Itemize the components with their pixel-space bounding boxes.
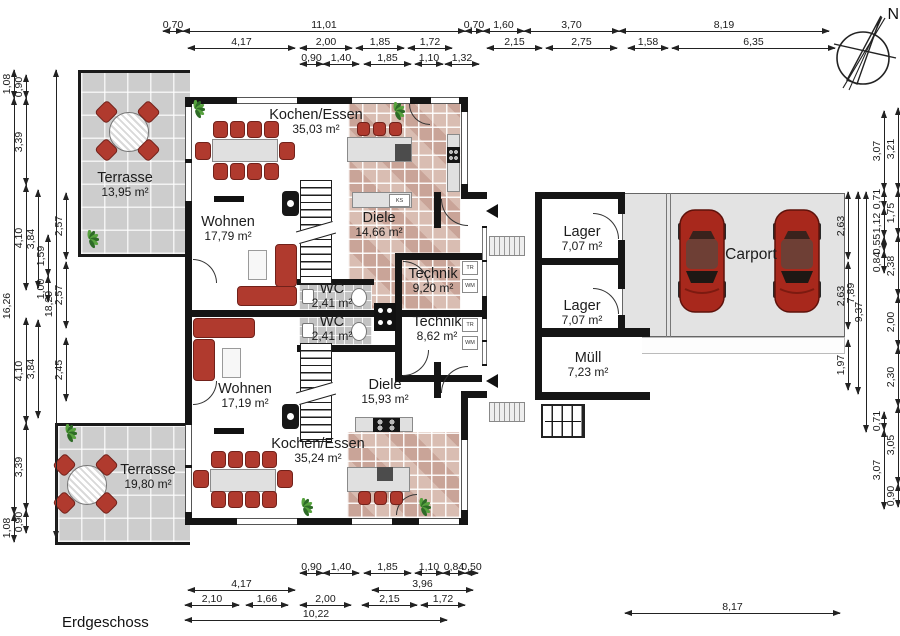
dimension-value: 7,89	[845, 283, 857, 303]
dining-chair	[195, 142, 211, 160]
door-arc	[193, 381, 217, 405]
dimension-value: 0,50	[461, 561, 481, 573]
dimension-value: 4,10	[13, 360, 25, 380]
dimension-line: 1,75	[898, 190, 899, 235]
dimension-value: 1,75	[885, 202, 897, 222]
dining-chair	[264, 163, 279, 180]
room-label-terrasse-top: Terrasse13,95 m²	[97, 170, 153, 200]
room-name: WC	[312, 314, 353, 330]
dimension-line: 1,40	[323, 64, 359, 65]
dimension-value: 2,57	[53, 216, 65, 236]
dimension-value: 3,07	[871, 140, 883, 160]
dimension-value: 4,17	[231, 578, 251, 590]
carport-divider	[670, 193, 671, 337]
plant-icon	[386, 102, 405, 121]
wall	[395, 253, 482, 260]
dimension-line: 0,90	[300, 64, 323, 65]
dimension-line: 0,90	[26, 75, 27, 98]
dimension-line: 1,60	[483, 31, 524, 32]
dimension-line: 1,97	[848, 340, 849, 390]
room-name: Wohnen	[218, 381, 272, 397]
terrace-top-floor	[78, 70, 190, 257]
room-area: 35,24 m²	[271, 452, 365, 465]
room-area: 17,79 m²	[201, 230, 255, 243]
sideboard	[214, 196, 244, 202]
dimension-value: 1,58	[638, 36, 658, 48]
wall	[395, 317, 402, 382]
dimension-value: 9,37	[853, 302, 865, 322]
floorplan-canvas: N Erdgeschoss Kochen/Essen35,03 m²Wohnen…	[0, 0, 900, 636]
dimension-value: 2,00	[315, 593, 335, 605]
dimension-value: 1,08	[1, 74, 13, 94]
dimension-value: 2,00	[885, 311, 897, 331]
dimension-value: 2,75	[571, 36, 591, 48]
room-area: 14,66 m²	[355, 226, 402, 239]
dimension-line: 8,19	[619, 31, 829, 32]
window	[482, 319, 487, 340]
room-label-lager-top: Lager7,07 m²	[562, 224, 603, 254]
dimension-value: 8,19	[714, 19, 734, 31]
dimension-value: 3,05	[885, 435, 897, 455]
window	[352, 518, 392, 525]
window	[419, 518, 459, 525]
staircase-top	[300, 180, 332, 285]
dimension-line: 2,00	[898, 296, 899, 347]
coffee-table-bottom	[222, 348, 241, 378]
wall	[535, 192, 542, 400]
dimension-value: 1,97	[835, 355, 847, 375]
door-arc	[403, 350, 429, 376]
dimension-value: 2,30	[885, 366, 897, 386]
fireplace-top	[282, 191, 299, 216]
room-label-diele-top: Diele14,66 m²	[355, 210, 402, 240]
dining-chair	[277, 470, 293, 488]
dining-chair	[211, 451, 226, 468]
dimension-line: 16,26	[14, 98, 15, 514]
entrance-arrow-icon	[486, 204, 498, 218]
dimension-value: 3,39	[13, 131, 25, 151]
dimension-line: 7,89	[858, 192, 859, 394]
dimension-line: 0,90	[26, 510, 27, 533]
sofa-bottom	[193, 318, 255, 338]
chimney-block	[374, 303, 396, 331]
bar-stool	[374, 491, 387, 505]
dimension-line: 8,17	[625, 613, 840, 614]
dimension-line: 2,57	[66, 193, 67, 259]
room-label-lager-bottom: Lager7,07 m²	[562, 298, 603, 328]
dimension-line: 2,57	[66, 262, 67, 328]
room-area: 7,23 m²	[568, 366, 609, 379]
room-area: 9,20 m²	[408, 282, 457, 295]
door-arc	[193, 259, 217, 283]
dimension-line: 6,35	[672, 48, 835, 49]
dimension-value: 1,40	[331, 561, 351, 573]
dining-chair	[228, 451, 243, 468]
dimension-value: 1,85	[377, 561, 397, 573]
dimension-value: 3,84	[25, 359, 37, 379]
dining-chair	[193, 470, 209, 488]
room-label-wc-bottom: WC2,41 m²	[312, 314, 353, 344]
cooktop-bottom	[373, 418, 400, 432]
bar-stool	[358, 491, 371, 505]
appliance-tag-wm: WM	[462, 279, 478, 293]
wall	[535, 392, 650, 400]
dimension-value: 3,21	[885, 139, 897, 159]
dimension-value: 1,72	[433, 593, 453, 605]
dimension-value: 4,17	[231, 36, 251, 48]
dimension-line: 0,50	[465, 573, 478, 574]
dimension-line: 3,21	[898, 108, 899, 190]
dimension-value: 4,10	[13, 227, 25, 247]
appliance-label: TR	[466, 265, 473, 271]
dining-chair	[262, 491, 277, 508]
cooktop-top	[447, 147, 460, 163]
dimension-line: 2,38	[898, 235, 899, 296]
dimension-line: 1,10	[415, 64, 443, 65]
room-area: 7,07 m²	[562, 314, 603, 327]
staircase-bottom	[300, 343, 332, 442]
room-name: Wohnen	[201, 214, 255, 230]
room-name: Diele	[355, 210, 402, 226]
floor-title: Erdgeschoss	[62, 614, 149, 631]
room-label-technik-bottom: Technik8,62 m²	[412, 314, 461, 344]
dimension-line: 1,59	[48, 235, 49, 276]
dining-table-bottom	[210, 469, 276, 492]
bar-stool	[389, 122, 402, 136]
dimension-value: 1,40	[331, 52, 351, 64]
dimension-line: 2,15	[362, 605, 417, 606]
sofa-bottom	[193, 339, 215, 381]
room-label-terrasse-bottom: Terrasse19,80 m²	[120, 462, 176, 492]
dimension-value: 10,22	[303, 608, 329, 620]
room-name: Lager	[562, 298, 603, 314]
window	[237, 518, 297, 525]
room-label-diele-bottom: Diele15,93 m²	[361, 377, 408, 407]
appliance-label: TR	[466, 322, 473, 328]
room-label-carport: Carport	[725, 246, 777, 263]
sideboard	[214, 428, 244, 434]
room-name: Lager	[562, 224, 603, 240]
wall	[535, 328, 650, 337]
room-area: 7,07 m²	[562, 240, 603, 253]
plant-icon	[58, 424, 77, 443]
room-label-wohnen-bottom: Wohnen17,19 m²	[218, 381, 272, 411]
dimension-line: 1,72	[408, 48, 452, 49]
dimension-value: 3,07	[871, 459, 883, 479]
carport-divider	[666, 193, 667, 337]
compass: N	[833, 6, 899, 94]
dimension-value: 2,63	[835, 215, 847, 235]
dimension-value: 11,01	[311, 19, 337, 31]
dimension-line: 1,40	[323, 573, 359, 574]
room-area: 17,19 m²	[218, 397, 272, 410]
toilet	[351, 288, 367, 307]
door-arc	[441, 366, 468, 393]
dimension-value: 0,84	[871, 252, 883, 272]
dimension-value: 2,38	[885, 255, 897, 275]
entrance-arrow-icon	[486, 374, 498, 388]
dimension-line: 1,72	[421, 605, 465, 606]
room-label-kochen-essen-top: Kochen/Essen35,03 m²	[269, 107, 363, 137]
dimension-line: 1,85	[364, 573, 411, 574]
room-area: 8,62 m²	[412, 330, 461, 343]
dimension-value: 0,90	[13, 76, 25, 96]
dimension-line: 3,84	[38, 190, 39, 288]
dimension-line: 3,39	[26, 98, 27, 185]
appliance-label: WM	[465, 283, 475, 289]
dimension-line: 0,55	[884, 237, 885, 251]
room-name: Carport	[725, 246, 777, 263]
appliance-label: KS	[396, 198, 403, 204]
room-label-wohnen-top: Wohnen17,79 m²	[201, 214, 255, 244]
dimension-line: 1,66	[246, 605, 288, 606]
dimension-value: 0,90	[13, 511, 25, 531]
dimension-value: 1,32	[452, 52, 472, 64]
plant-icon	[294, 498, 313, 517]
carport-car	[772, 209, 822, 313]
dimension-line: 3,84	[38, 320, 39, 418]
dimension-line: 1,10	[415, 573, 443, 574]
room-name: Technik	[412, 314, 461, 330]
wall	[535, 192, 625, 199]
dimension-line: 3,39	[26, 423, 27, 510]
dining-chair	[211, 491, 226, 508]
dimension-line: 2,00	[300, 48, 352, 49]
carport-car	[677, 209, 727, 313]
plant-icon	[412, 498, 431, 517]
window	[482, 228, 487, 260]
room-label-wc-top: WC2,41 m²	[312, 281, 353, 311]
dining-table-top	[212, 139, 278, 162]
dimension-value: 2,15	[379, 593, 399, 605]
dining-chair	[247, 163, 262, 180]
dimension-line: 0,84	[443, 573, 465, 574]
dimension-line: 0,70	[163, 31, 183, 32]
dimension-value: 0,90	[301, 52, 321, 64]
kitchen-counter-right	[447, 134, 460, 192]
appliance-tag-wm: WM	[462, 336, 478, 350]
dimension-value: 3,39	[13, 456, 25, 476]
window	[237, 97, 297, 104]
appliance-tag-tr: TR	[462, 261, 478, 275]
coffee-table-top	[248, 250, 267, 280]
room-area: 13,95 m²	[97, 186, 153, 199]
room-name: Terrasse	[120, 462, 176, 478]
room-name: Terrasse	[97, 170, 153, 186]
dimension-line: 1,85	[356, 48, 404, 49]
window	[185, 468, 192, 512]
appliance-tag-tr: TR	[462, 318, 478, 332]
toilet	[351, 322, 367, 341]
dining-chair	[213, 121, 228, 138]
fireplace-bottom	[282, 404, 299, 429]
plant-icon	[186, 100, 205, 119]
room-area: 35,03 m²	[269, 123, 363, 136]
dimension-value: 2,10	[202, 593, 222, 605]
dimension-value: 2,00	[316, 36, 336, 48]
wall	[461, 192, 487, 199]
room-label-kochen-essen-bottom: Kochen/Essen35,24 m²	[271, 436, 365, 466]
entrance-grate	[489, 236, 525, 256]
dimension-value: 6,35	[743, 36, 763, 48]
dimension-value: 1,85	[377, 52, 397, 64]
window	[185, 163, 192, 201]
appliance-tag-ks: KS	[389, 194, 410, 207]
dimension-value: 1,08	[1, 518, 13, 538]
island-sink	[377, 467, 393, 481]
dining-chair	[279, 142, 295, 160]
entrance-grate	[489, 402, 525, 422]
dimension-value: 2,45	[53, 359, 65, 379]
room-area: 19,80 m²	[120, 478, 176, 491]
window	[461, 112, 468, 184]
plant-icon	[80, 230, 99, 249]
exterior-stairs	[541, 404, 585, 438]
dining-chair	[228, 491, 243, 508]
room-name: Technik	[408, 266, 457, 282]
dimension-line: 2,10	[185, 605, 239, 606]
dimension-value: 2,57	[53, 285, 65, 305]
window	[482, 342, 487, 364]
dimension-value: 1,66	[257, 593, 277, 605]
window	[431, 97, 459, 104]
carport-pavement	[622, 337, 845, 354]
dimension-value: 3,96	[412, 578, 432, 590]
wall	[434, 362, 441, 398]
dimension-line: 3,05	[898, 406, 899, 484]
wall	[395, 253, 402, 310]
dimension-line: 1,85	[364, 64, 411, 65]
dimension-value: 1,10	[419, 561, 439, 573]
dining-chair	[245, 491, 260, 508]
room-name: Kochen/Essen	[269, 107, 363, 123]
dining-chair	[213, 163, 228, 180]
sofa-top	[237, 286, 297, 306]
dimension-line: 4,17	[188, 48, 295, 49]
dining-chair	[247, 121, 262, 138]
room-name: Kochen/Essen	[271, 436, 365, 452]
dimension-value: 1,60	[493, 19, 513, 31]
dimension-line: 2,30	[898, 347, 899, 406]
room-label-muell: Müll7,23 m²	[568, 350, 609, 380]
dimension-value: 2,15	[504, 36, 524, 48]
dining-chair	[230, 163, 245, 180]
room-name: WC	[312, 281, 353, 297]
dimension-value: 3,70	[561, 19, 581, 31]
appliance-label: WM	[465, 340, 475, 346]
dimension-line: 0,70	[465, 31, 483, 32]
dimension-line: 3,70	[524, 31, 619, 32]
bar-stool	[373, 122, 386, 136]
dimension-value: 0,70	[163, 19, 183, 31]
dimension-line: 2,00	[300, 605, 351, 606]
wall	[535, 258, 625, 265]
window	[185, 425, 192, 465]
wall	[185, 97, 468, 104]
window	[461, 440, 468, 510]
dimension-line: 1,32	[445, 64, 479, 65]
dimension-value: 8,17	[722, 601, 742, 613]
dimension-line: 9,37	[866, 192, 867, 432]
room-name: Müll	[568, 350, 609, 366]
dimension-line: 0,90	[300, 573, 323, 574]
wall	[434, 192, 441, 228]
room-label-technik-top: Technik9,20 m²	[408, 266, 457, 296]
dining-chair	[230, 121, 245, 138]
room-name: Diele	[361, 377, 408, 393]
dimension-value: 1,72	[420, 36, 440, 48]
dimension-line: 2,75	[546, 48, 617, 49]
dimension-line: 3,96	[372, 590, 473, 591]
dimension-value: 1,12	[871, 212, 883, 232]
dimension-line: 4,17	[188, 590, 295, 591]
dimension-value: 1,59	[35, 245, 47, 265]
dimension-line: 2,15	[487, 48, 542, 49]
dimension-line: 1,58	[628, 48, 668, 49]
bar-stool	[390, 491, 403, 505]
dimension-value: 0,90	[885, 485, 897, 505]
dimension-value: 1,85	[370, 36, 390, 48]
dimension-line: 10,22	[185, 620, 447, 621]
dimension-value: 0,90	[301, 561, 321, 573]
compass-north-label: N	[887, 6, 899, 24]
dimension-value: 1,10	[419, 52, 439, 64]
room-area: 2,41 m²	[312, 297, 353, 310]
room-area: 2,41 m²	[312, 330, 353, 343]
dimension-line: 0,71	[884, 412, 885, 430]
dimension-value: 16,26	[1, 293, 13, 319]
dimension-line: 2,63	[848, 192, 849, 259]
dimension-line: 2,45	[66, 338, 67, 401]
dimension-line: 0,90	[898, 484, 899, 507]
sofa-top	[275, 244, 297, 287]
window	[482, 262, 487, 296]
dining-chair	[245, 451, 260, 468]
island-sink	[395, 144, 411, 161]
dimension-line: 11,01	[183, 31, 465, 32]
wall	[618, 192, 625, 214]
room-area: 15,93 m²	[361, 393, 408, 406]
